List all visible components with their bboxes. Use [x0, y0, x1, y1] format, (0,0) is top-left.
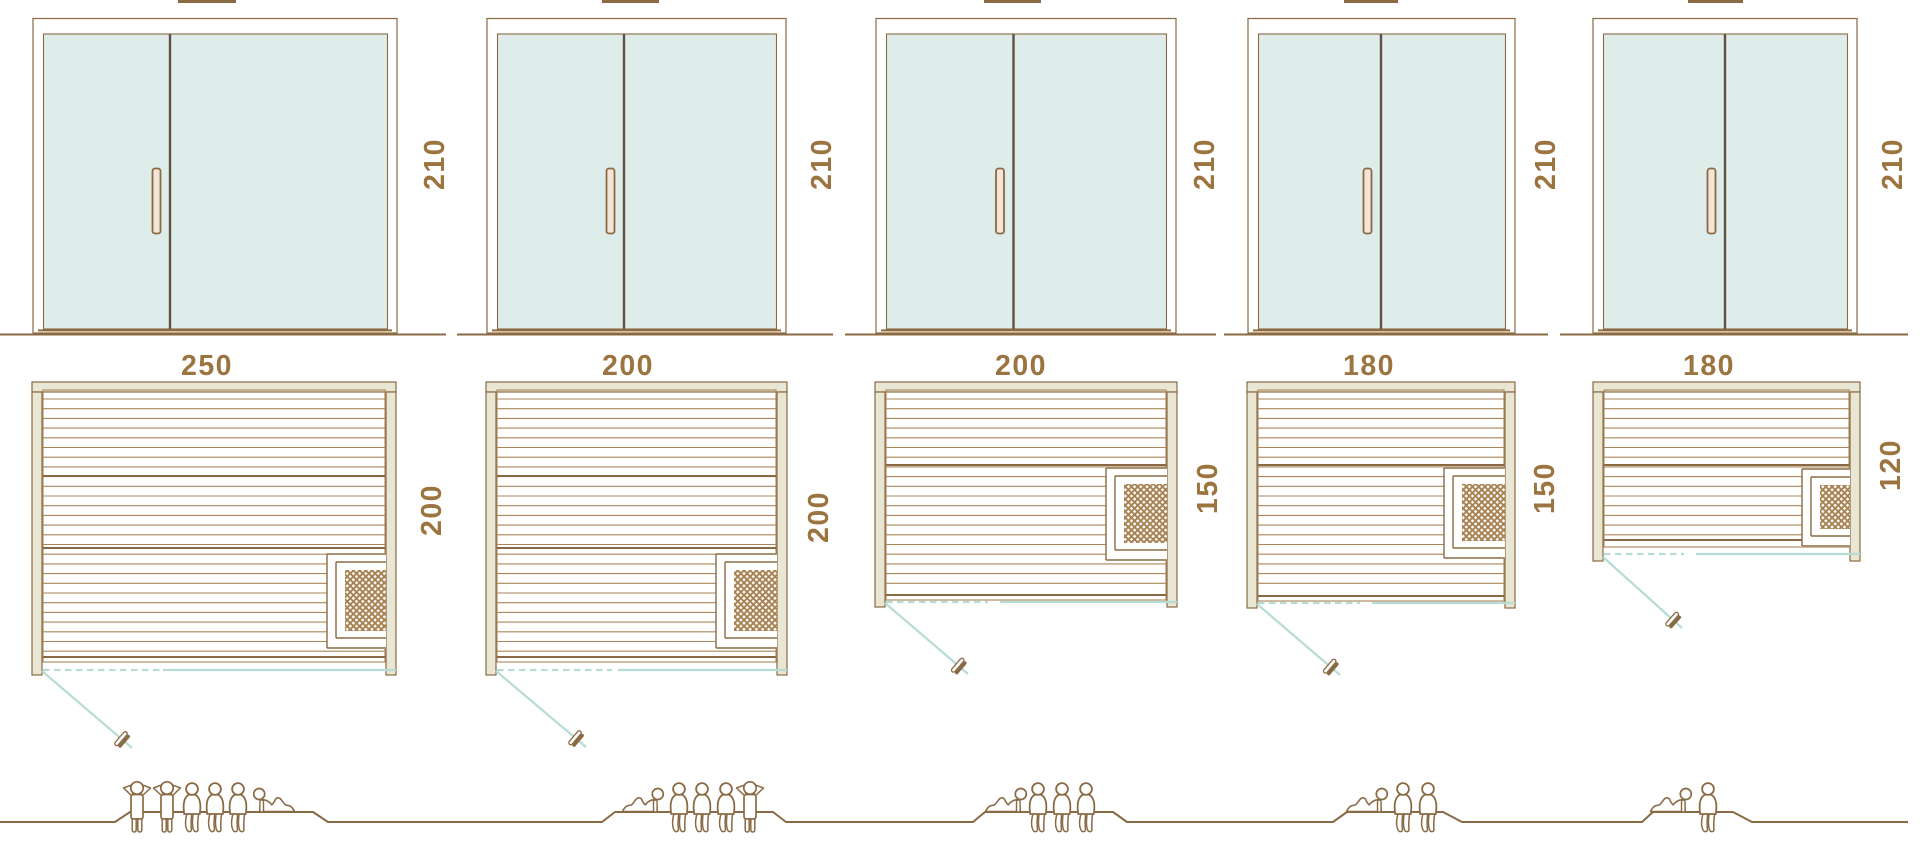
svg-text:210: 210	[806, 138, 838, 190]
svg-text:180: 180	[1683, 350, 1735, 382]
svg-text:210: 210	[1189, 138, 1221, 190]
svg-text:200: 200	[803, 491, 835, 543]
svg-text:120: 120	[1875, 439, 1907, 491]
svg-text:250: 250	[181, 350, 233, 382]
svg-text:200: 200	[416, 484, 448, 536]
svg-text:150: 150	[1529, 462, 1561, 514]
svg-text:210: 210	[1530, 138, 1562, 190]
svg-text:210: 210	[419, 138, 451, 190]
svg-text:150: 150	[1192, 462, 1224, 514]
svg-text:180: 180	[1343, 350, 1395, 382]
svg-text:200: 200	[602, 350, 654, 382]
svg-text:200: 200	[995, 350, 1047, 382]
svg-text:210: 210	[1877, 138, 1909, 190]
